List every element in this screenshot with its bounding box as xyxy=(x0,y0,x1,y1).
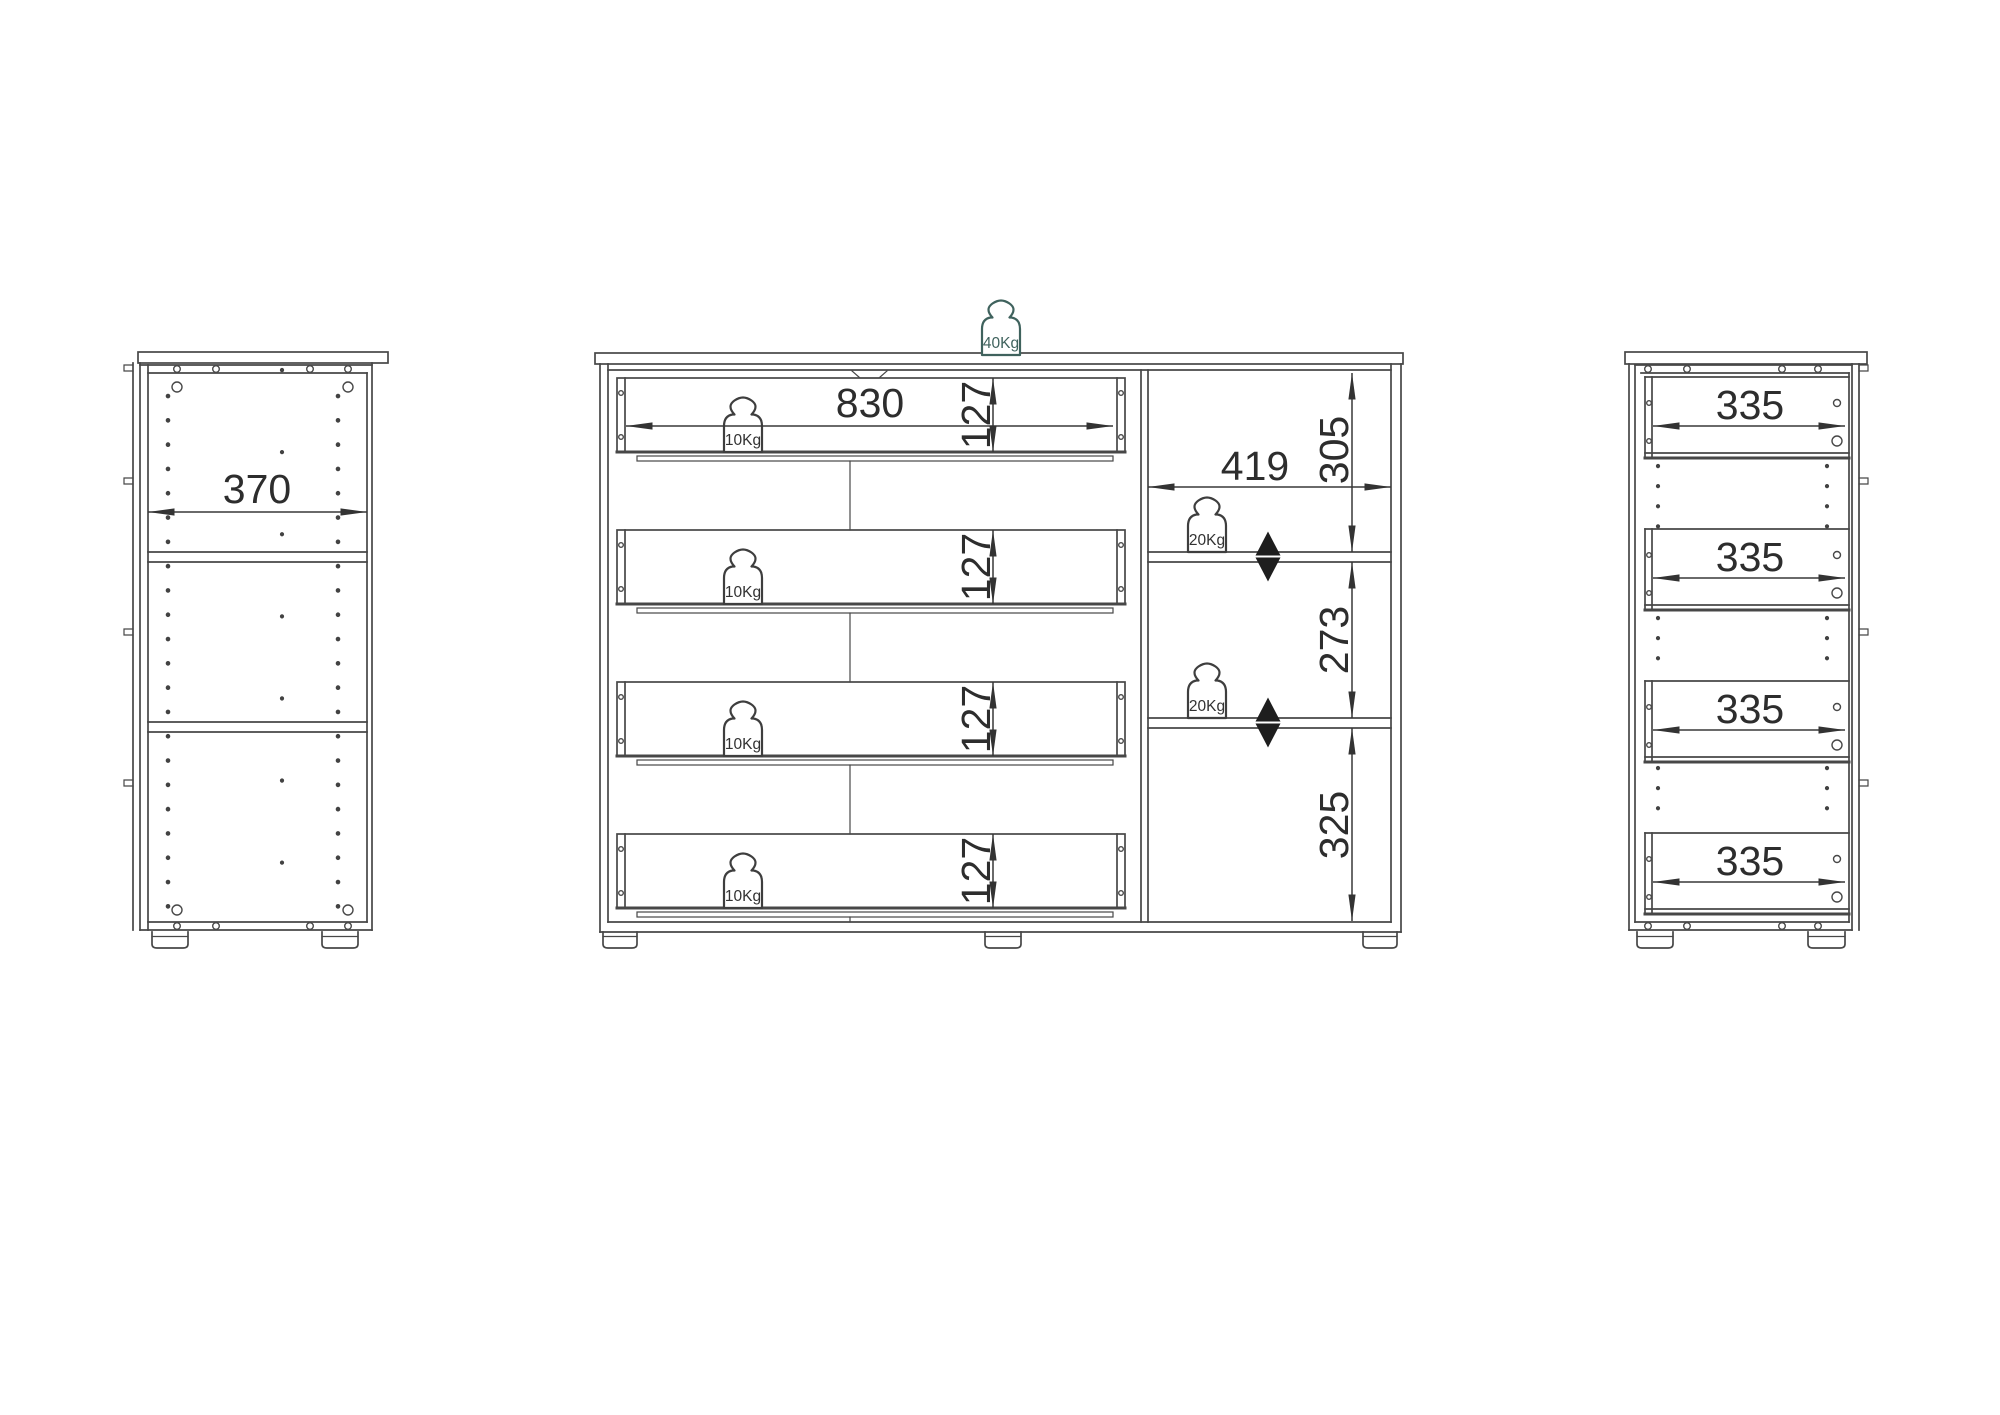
front-drawer-2: 10Kg 127 xyxy=(617,530,1125,682)
front-drawer-1: 10Kg 830 127 xyxy=(617,378,1125,530)
left-view-screw-holes xyxy=(168,366,353,930)
dim-label-335: 335 xyxy=(1716,382,1784,428)
drawer-load-label: 10Kg xyxy=(725,584,761,601)
dimension-bottom-section-325: 325 xyxy=(1311,728,1357,921)
dim-label-273: 273 xyxy=(1311,606,1357,674)
dim-label-127: 127 xyxy=(953,381,999,449)
dimension-depth-370: 370 xyxy=(148,466,367,512)
wall-bracket-notch xyxy=(852,371,887,378)
dim-label-127: 127 xyxy=(953,685,999,753)
dim-label-370: 370 xyxy=(223,466,291,512)
shelf-compartment: 20Kg 20Kg 419 305 273 325 xyxy=(1148,373,1391,921)
dimension-drawer-width-830: 830 xyxy=(626,380,1113,426)
dimension-drawer-height-127: 127 xyxy=(953,378,999,452)
right-view-wall-hooks xyxy=(1859,365,1868,786)
adjustable-shelf-arrows-icon xyxy=(1256,532,1281,582)
front-view-feet xyxy=(603,932,1397,948)
dim-label-419: 419 xyxy=(1221,443,1289,489)
drawer-load-label: 10Kg xyxy=(725,432,761,449)
adjustable-shelf-arrows-icon xyxy=(1256,698,1281,748)
cabinet-dimension-drawing: 370 40Kg xyxy=(0,0,2000,1415)
drawer-slide-rail xyxy=(637,456,1113,461)
side-drawer-2: 335 xyxy=(1645,529,1849,610)
dimension-drawer-height-127: 127 xyxy=(953,530,999,604)
dimension-drawer-height-127: 127 xyxy=(953,834,999,908)
top-load-weight-40kg-icon: 40Kg xyxy=(982,301,1020,356)
left-view-wall-hooks xyxy=(124,365,133,786)
left-view-feet xyxy=(152,932,358,948)
dim-label-325: 325 xyxy=(1311,791,1357,859)
side-drawer-1: 335 xyxy=(1645,377,1849,458)
front-view: 40Kg 10Kg 830 127 xyxy=(595,301,1403,949)
right-view-feet xyxy=(1637,932,1845,948)
dim-label-335: 335 xyxy=(1716,686,1784,732)
dimension-drawer-depth-335: 335 xyxy=(1653,838,1845,884)
dim-label-335: 335 xyxy=(1716,534,1784,580)
dim-label-305: 305 xyxy=(1311,416,1357,484)
dimension-top-section-305: 305 xyxy=(1311,373,1357,552)
drawer-load-label: 10Kg xyxy=(725,736,761,753)
dim-label-127: 127 xyxy=(953,533,999,601)
dimension-drawer-height-127: 127 xyxy=(953,682,999,756)
side-drawer-4: 335 xyxy=(1645,833,1849,914)
drawer-slide-rail xyxy=(637,760,1113,765)
shelf-load-label: 20Kg xyxy=(1189,698,1225,715)
drawer-slide-rail xyxy=(637,608,1113,613)
front-drawer-4: 10Kg 127 xyxy=(617,834,1125,922)
dim-label-335: 335 xyxy=(1716,838,1784,884)
dimension-drawer-depth-335: 335 xyxy=(1653,534,1845,580)
dim-label-127: 127 xyxy=(953,837,999,905)
technical-drawing-page: 370 40Kg xyxy=(0,0,2000,1415)
left-side-panel-view: 370 xyxy=(124,352,388,948)
dimension-drawer-depth-335: 335 xyxy=(1653,686,1845,732)
front-drawer-3: 10Kg 127 xyxy=(617,682,1125,834)
right-side-panel-view: 335 335 33 xyxy=(1625,352,1868,948)
top-load-label: 40Kg xyxy=(983,335,1019,352)
left-view-shelf-lines xyxy=(148,552,367,732)
drawer-load-label: 10Kg xyxy=(725,888,761,905)
dim-label-830: 830 xyxy=(836,380,904,426)
front-view-outline xyxy=(595,353,1403,932)
dimension-middle-section-273: 273 xyxy=(1311,562,1357,718)
shelf-load-label: 20Kg xyxy=(1189,532,1225,549)
dimension-drawer-depth-335: 335 xyxy=(1653,382,1845,428)
left-view-outline xyxy=(133,352,388,930)
drawer-slide-rail xyxy=(637,912,1113,917)
side-drawer-3: 335 xyxy=(1645,681,1849,762)
